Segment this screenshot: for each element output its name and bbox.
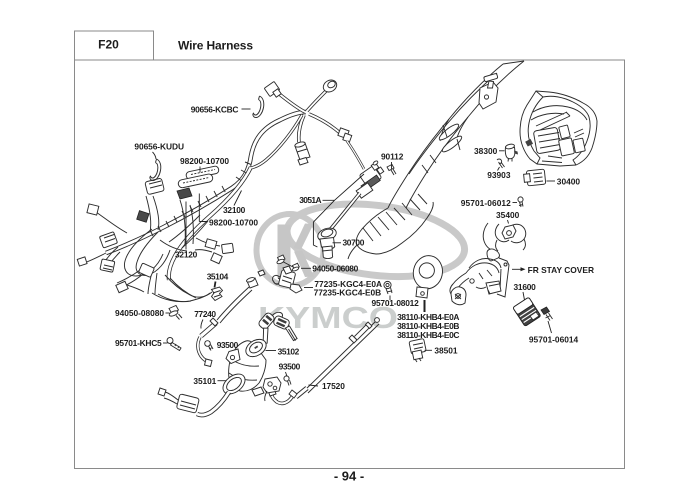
svg-text:38501: 38501 <box>434 346 457 356</box>
svg-text:17520: 17520 <box>322 381 345 391</box>
svg-text:- 94 -: - 94 - <box>334 469 364 484</box>
svg-text:94050-08080: 94050-08080 <box>115 308 164 318</box>
svg-text:98200-10700: 98200-10700 <box>180 156 229 166</box>
svg-text:38110-KHB4-E0C: 38110-KHB4-E0C <box>397 330 459 340</box>
svg-text:95701-06014: 95701-06014 <box>529 335 579 345</box>
svg-text:90112: 90112 <box>381 152 404 162</box>
svg-text:FR STAY COVER: FR STAY COVER <box>528 265 594 275</box>
svg-text:30700: 30700 <box>343 238 365 248</box>
svg-text:30400: 30400 <box>557 177 581 187</box>
svg-text:93903: 93903 <box>487 170 511 180</box>
svg-text:35101: 35101 <box>193 376 216 386</box>
svg-text:3051A: 3051A <box>299 195 321 205</box>
svg-text:31600: 31600 <box>514 282 537 292</box>
svg-text:95701-08012: 95701-08012 <box>372 298 420 308</box>
svg-text:35400: 35400 <box>496 210 520 220</box>
svg-text:93500: 93500 <box>217 340 239 350</box>
svg-text:32120: 32120 <box>175 250 198 260</box>
svg-text:93500: 93500 <box>279 362 301 372</box>
svg-text:F20: F20 <box>98 38 119 52</box>
svg-text:38300: 38300 <box>474 146 498 156</box>
svg-text:95701-KHC5: 95701-KHC5 <box>115 338 162 348</box>
svg-text:95701-06012: 95701-06012 <box>461 198 511 208</box>
svg-text:90656-KCBC: 90656-KCBC <box>191 104 239 114</box>
svg-text:90656-KUDU: 90656-KUDU <box>134 142 184 152</box>
svg-text:Wire Harness: Wire Harness <box>178 39 253 53</box>
svg-text:98200-10700: 98200-10700 <box>209 218 258 228</box>
svg-text:77235-KGC4-E0B: 77235-KGC4-E0B <box>314 287 382 297</box>
svg-text:35104: 35104 <box>207 272 229 282</box>
svg-text:94050-06080: 94050-06080 <box>312 264 358 274</box>
svg-text:35102: 35102 <box>278 347 300 357</box>
svg-text:77240: 77240 <box>194 309 216 319</box>
svg-text:32100: 32100 <box>223 205 246 215</box>
